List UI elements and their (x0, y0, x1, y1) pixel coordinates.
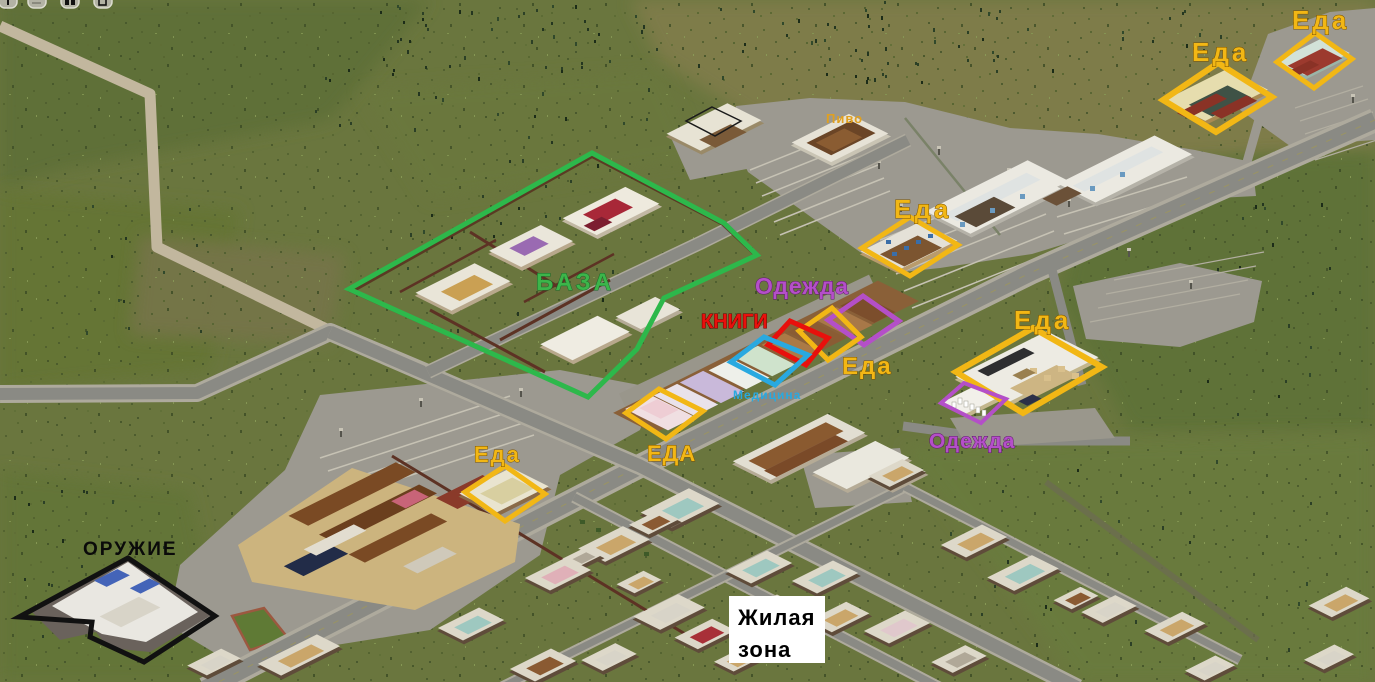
svg-text:Еда: Еда (894, 194, 951, 224)
svg-text:Еда: Еда (842, 353, 893, 380)
svg-text:Еда: Еда (1292, 5, 1349, 35)
svg-text:ЕДА: ЕДА (647, 441, 696, 466)
svg-text:КНИГИ: КНИГИ (701, 311, 768, 333)
svg-text:Еда: Еда (474, 442, 521, 467)
svg-text:Медицина: Медицина (733, 388, 801, 402)
svg-text:Еда: Еда (1192, 37, 1249, 67)
svg-text:Одежда: Одежда (755, 273, 849, 299)
svg-text:Жилая: Жилая (737, 605, 815, 630)
svg-text:Еда: Еда (1014, 305, 1071, 335)
svg-text:Пиво: Пиво (826, 111, 863, 126)
svg-text:зона: зона (738, 637, 791, 662)
svg-text:ОРУЖИЕ: ОРУЖИЕ (83, 539, 178, 560)
svg-text:Одежда: Одежда (929, 430, 1015, 453)
svg-text:БАЗА: БАЗА (536, 269, 614, 296)
